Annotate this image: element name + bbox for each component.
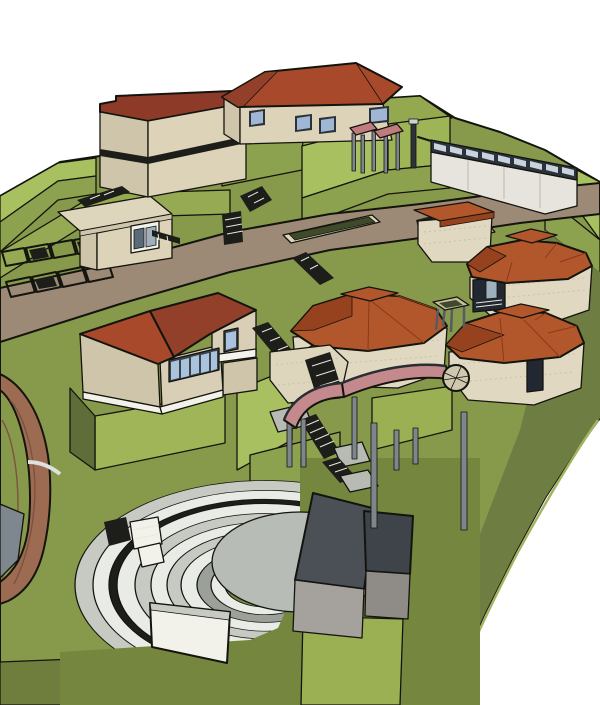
wheel-window: [443, 365, 469, 391]
gatehouse-window: [131, 221, 159, 253]
site-model-render: [0, 0, 600, 705]
pergola-post: [396, 128, 400, 170]
house-upper-window: [224, 328, 238, 352]
post-cap: [409, 119, 418, 124]
pergola-post: [352, 133, 356, 171]
model-viewport: [0, 0, 600, 705]
pergola-post: [384, 133, 388, 173]
house-lower-wing: [223, 358, 257, 395]
pergola-post: [411, 122, 416, 168]
gatehouse-side-wall: [80, 231, 97, 270]
pergola-post: [372, 131, 376, 171]
stage-box-wall: [365, 571, 410, 619]
stair-flight: [222, 211, 243, 245]
pergola-post: [361, 135, 365, 173]
stage-boxes: [293, 493, 413, 638]
stage-box-wall: [293, 580, 364, 638]
